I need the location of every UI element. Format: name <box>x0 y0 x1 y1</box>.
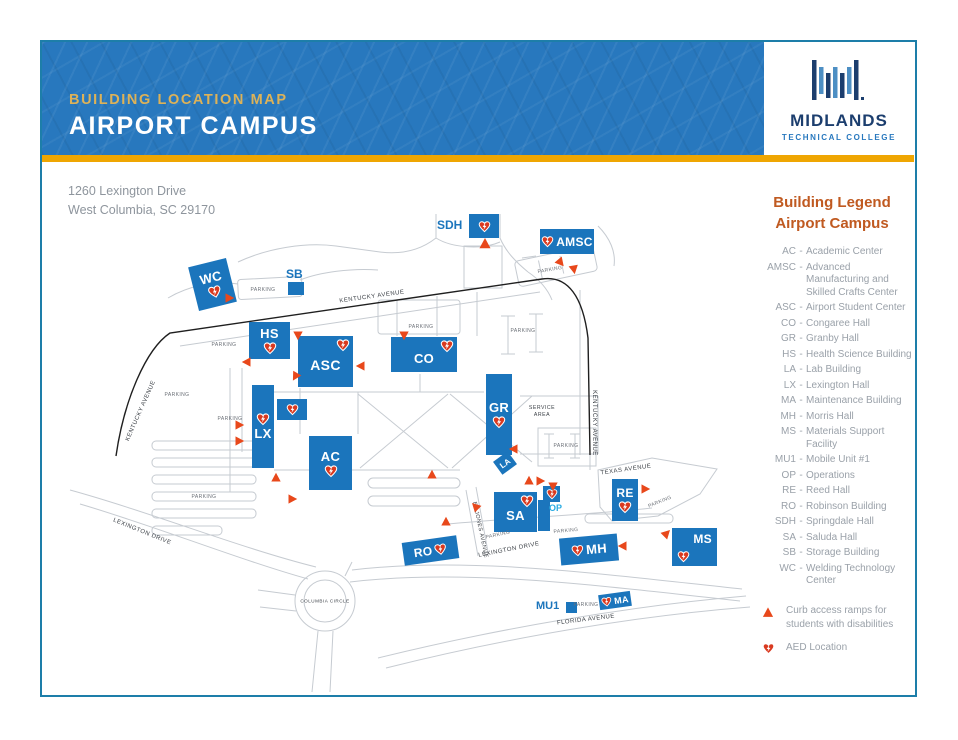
legend-abbr: HS <box>752 349 796 362</box>
road-label: AREA <box>534 412 550 418</box>
building-label: MA <box>613 594 629 606</box>
legend-separator: - <box>798 395 804 408</box>
legend-name: Mobile Unit #1 <box>806 454 912 467</box>
legend-separator: - <box>798 532 804 545</box>
building-mh: MH <box>559 534 619 566</box>
legend-abbr: MU1 <box>752 454 796 467</box>
ramp-icon <box>524 475 535 486</box>
ramp-icon <box>441 516 452 527</box>
parking-label: PARKING <box>212 342 237 348</box>
parking-label: PARKING <box>251 287 276 293</box>
building-label: RO <box>413 543 433 559</box>
ramp-icon <box>399 331 410 342</box>
aed-icon <box>206 283 223 300</box>
building-lxa <box>277 399 307 420</box>
legend-separator: - <box>798 318 804 331</box>
building-label: HS <box>260 326 279 341</box>
building-ms: MS <box>672 528 717 566</box>
map-label-op: OP <box>549 503 562 513</box>
ramp-icon <box>762 604 778 623</box>
legend-abbr: LA <box>752 364 796 377</box>
legend-name: Lab Building <box>806 364 912 377</box>
legend-name: Reed Hall <box>806 485 912 498</box>
legend-name: Robinson Building <box>806 501 912 514</box>
building-ac: AC <box>309 436 352 490</box>
legend-name: Congaree Hall <box>806 318 912 331</box>
ramp-icon <box>568 264 581 277</box>
legend-separator: - <box>798 411 804 424</box>
building-legend: Building Legend Airport Campus AC-Academ… <box>752 192 912 234</box>
aed-icon <box>541 235 554 248</box>
legend-marker-row: AED Location <box>762 641 908 660</box>
legend-name: Springdale Hall <box>806 516 912 529</box>
building-label: CO <box>414 351 434 366</box>
building-sb <box>288 282 304 295</box>
legend-name: Morris Hall <box>806 411 912 424</box>
ramp-icon <box>288 494 299 505</box>
legend-abbr: LX <box>752 380 796 393</box>
legend-abbr: AC <box>752 246 796 259</box>
ramp-icon <box>479 237 492 250</box>
ramp-icon <box>548 482 559 493</box>
aed-icon <box>478 220 491 233</box>
legend-abbr: WC <box>752 563 796 588</box>
legend-name: Granby Hall <box>806 333 912 346</box>
building-co: CO <box>391 337 457 372</box>
legend-separator: - <box>798 470 804 483</box>
building-label: GR <box>489 400 509 415</box>
ramp-icon <box>508 444 519 455</box>
ramp-icon <box>641 484 652 495</box>
aed-icon <box>571 543 585 557</box>
road-label: KENTUCKY AVENUE <box>591 390 597 456</box>
building-label: RE <box>616 486 633 500</box>
parking-label: PARKING <box>511 328 536 334</box>
building-label: LX <box>254 426 271 441</box>
parking-label: PARKING <box>192 494 217 500</box>
road-label: COLUMBIA CIRCLE <box>300 599 349 604</box>
legend-abbr: SDH <box>752 516 796 529</box>
legend-title-line1: Building Legend <box>752 192 912 213</box>
legend-marker-label: AED Location <box>786 641 906 655</box>
aed-icon <box>433 542 448 557</box>
building-sdh <box>469 214 499 238</box>
aed-icon <box>492 415 506 429</box>
building-label: MS <box>693 532 712 546</box>
legend-abbr: MS <box>752 426 796 451</box>
legend-name: Operations <box>806 470 912 483</box>
ramp-icon <box>225 293 236 304</box>
road-label: SERVICE <box>529 405 555 411</box>
ramp-icon <box>241 357 252 368</box>
aed-icon <box>762 641 778 660</box>
legend-markers: Curb access ramps for students with disa… <box>762 604 908 670</box>
parking-label: PARKING <box>574 602 599 608</box>
map-label-sb: SB <box>286 267 303 281</box>
legend-separator: - <box>798 364 804 377</box>
legend-abbr: AMSC <box>752 262 796 300</box>
legend-separator: - <box>798 246 804 259</box>
legend-separator: - <box>798 426 804 451</box>
aed-icon <box>256 412 270 426</box>
legend-name: Advanced Manufacturing and Skilled Craft… <box>806 262 912 300</box>
legend-separator: - <box>798 547 804 560</box>
aed-icon <box>263 341 277 355</box>
legend-abbr: OP <box>752 470 796 483</box>
ramp-icon <box>536 476 547 487</box>
parking-label: PARKING <box>165 392 190 398</box>
legend-name: Maintenance Building <box>806 395 912 408</box>
legend-abbr: MH <box>752 411 796 424</box>
ramp-icon <box>235 420 246 431</box>
aed-icon <box>520 494 534 508</box>
legend-marker-row: Curb access ramps for students with disa… <box>762 604 908 631</box>
legend-title: Building Legend Airport Campus <box>752 192 912 234</box>
ramp-icon <box>271 472 282 483</box>
legend-entries: AC-Academic CenterAMSC-Advanced Manufact… <box>752 246 912 588</box>
legend-separator: - <box>798 501 804 514</box>
legend-separator: - <box>798 380 804 393</box>
aed-icon <box>618 500 632 514</box>
legend-abbr: ASC <box>752 302 796 315</box>
legend-name: Health Science Building <box>806 349 912 362</box>
building-amsc: AMSC <box>540 229 594 254</box>
building-label: SA <box>506 508 525 523</box>
legend-abbr: MA <box>752 395 796 408</box>
legend-separator: - <box>798 333 804 346</box>
aed-icon <box>336 338 350 352</box>
ramp-icon <box>617 541 628 552</box>
legend-name: Lexington Hall <box>806 380 912 393</box>
legend-separator: - <box>798 302 804 315</box>
aed-icon <box>677 550 690 563</box>
building-label: AMSC <box>556 235 593 249</box>
ramp-icon <box>293 331 304 342</box>
legend-name: Storage Building <box>806 547 912 560</box>
legend-name: Airport Student Center <box>806 302 912 315</box>
ramp-icon <box>355 361 366 372</box>
legend-separator: - <box>798 262 804 300</box>
legend-abbr: SB <box>752 547 796 560</box>
aed-icon <box>762 642 775 655</box>
legend-abbr: CO <box>752 318 796 331</box>
building-asc: ASC <box>298 336 353 387</box>
legend-name: Saluda Hall <box>806 532 912 545</box>
aed-icon <box>440 339 454 353</box>
legend-separator: - <box>798 349 804 362</box>
legend-abbr: GR <box>752 333 796 346</box>
legend-separator: - <box>798 516 804 529</box>
building-lx: LX <box>252 385 274 468</box>
ramp-icon <box>235 436 246 447</box>
legend-title-line2: Airport Campus <box>752 213 912 234</box>
legend-abbr: RE <box>752 485 796 498</box>
building-label: LA <box>498 456 512 470</box>
legend-separator: - <box>798 563 804 588</box>
parking-label: PARKING <box>409 324 434 330</box>
building-label: ASC <box>310 357 340 373</box>
ramp-icon <box>427 469 438 480</box>
building-re: RE <box>612 479 638 521</box>
legend-separator: - <box>798 485 804 498</box>
legend-abbr: RO <box>752 501 796 514</box>
parking-label: PARKING <box>554 443 579 449</box>
building-label: MH <box>585 540 607 557</box>
legend-abbr: SA <box>752 532 796 545</box>
legend-marker-label: Curb access ramps for students with disa… <box>786 604 906 631</box>
aed-icon <box>286 403 299 416</box>
legend-name: Academic Center <box>806 246 912 259</box>
building-sa: SA <box>494 492 537 532</box>
legend-name: Welding Technology Center <box>806 563 912 588</box>
legend-separator: - <box>798 454 804 467</box>
legend-name: Materials Support Facility <box>806 426 912 451</box>
building-hs: HS <box>249 322 290 359</box>
aed-icon <box>601 595 613 607</box>
aed-icon <box>324 464 338 478</box>
building-label: AC <box>321 449 340 464</box>
map-label-mu1: MU1 <box>536 600 559 612</box>
map-label-sdh: SDH <box>437 218 462 232</box>
